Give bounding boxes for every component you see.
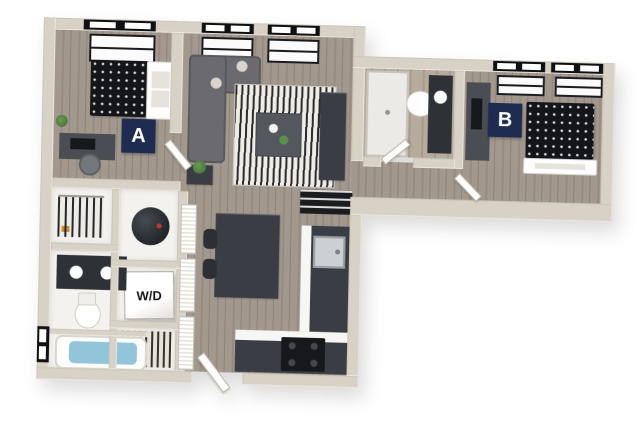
- bedroom-b-label: B: [488, 103, 523, 138]
- kitchen-island: [214, 213, 280, 299]
- wall-kitchen-right-exterior: [347, 215, 362, 376]
- bar-stool-2: [203, 259, 217, 279]
- window-bedroom-b-1: [493, 61, 545, 72]
- desk-bedroom-b: [465, 82, 491, 161]
- window-bedroom-b-2: [551, 62, 603, 73]
- bedroom-b-label-text: B: [498, 108, 513, 131]
- range-stove: [281, 337, 326, 372]
- skylight-living-2: [267, 39, 320, 64]
- bedroom-a-label: A: [121, 118, 156, 153]
- bed-bedroom-b: [525, 102, 594, 160]
- kitchen-sink: [313, 236, 346, 269]
- washer-dryer-label: W/D: [136, 288, 161, 303]
- bed-bedroom-a: [90, 60, 147, 118]
- bar-stool-1: [203, 229, 217, 249]
- bedroom-a-label-text: A: [131, 124, 146, 147]
- apartment-plan: W/D: [0, 0, 640, 425]
- bathtub: [55, 335, 148, 372]
- wall-right-wing-right: [600, 63, 615, 222]
- window-living-2: [268, 25, 320, 36]
- vanity-bathroom-2: [427, 75, 453, 154]
- console-table: [319, 92, 347, 181]
- sofa-sectional: [187, 54, 227, 163]
- wall-bathroom-2-bottom-right: [413, 158, 455, 169]
- closet-door-3: [178, 316, 195, 370]
- washer-dryer-unit: W/D: [124, 271, 175, 319]
- wall-bottom-right-segment: [242, 373, 358, 388]
- skylight-bedroom-b-2: [555, 77, 603, 98]
- window-living-1: [202, 23, 254, 34]
- bar-shelf: [300, 189, 353, 214]
- skylight-bedroom-b-1: [497, 75, 545, 96]
- wall-bathroom-2-right: [453, 71, 465, 169]
- window-bathroom-1: [37, 326, 50, 362]
- bed-footboard-bedroom-b: [523, 158, 597, 176]
- closet-door-2: [179, 258, 196, 312]
- coffee-table: [255, 112, 302, 157]
- hanging-clothes-closet: [57, 195, 104, 238]
- wall-bathroom-2-bottom-left: [363, 156, 381, 166]
- floorplan-render: W/D: [0, 0, 640, 425]
- window-bedroom-a: [84, 19, 156, 31]
- wall-bedroom-a-living-divider: [170, 33, 184, 133]
- closet-door-1: [180, 204, 197, 254]
